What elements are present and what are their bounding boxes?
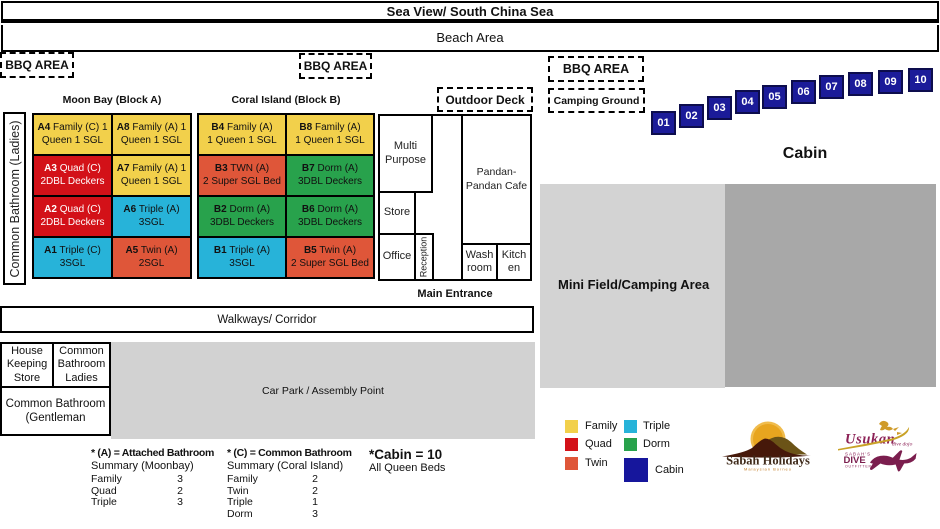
svg-text:Sabah Holidays: Sabah Holidays [726,454,810,468]
svg-text:Malaysian Borneo: Malaysian Borneo [744,467,792,472]
svg-text:dive dojo: dive dojo [892,442,913,448]
